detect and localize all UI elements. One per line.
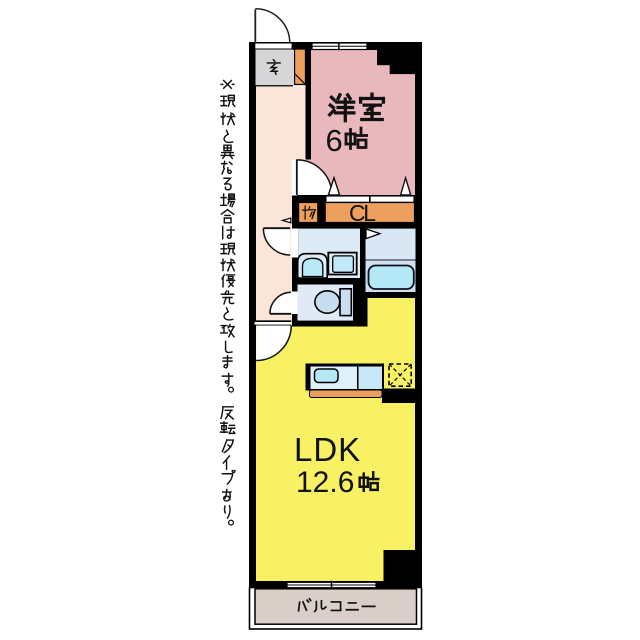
svg-text:12.6: 12.6 [296, 466, 354, 499]
svg-text:CL: CL [349, 200, 376, 226]
svg-text:6: 6 [326, 123, 343, 158]
svg-text:LDK: LDK [294, 431, 361, 468]
